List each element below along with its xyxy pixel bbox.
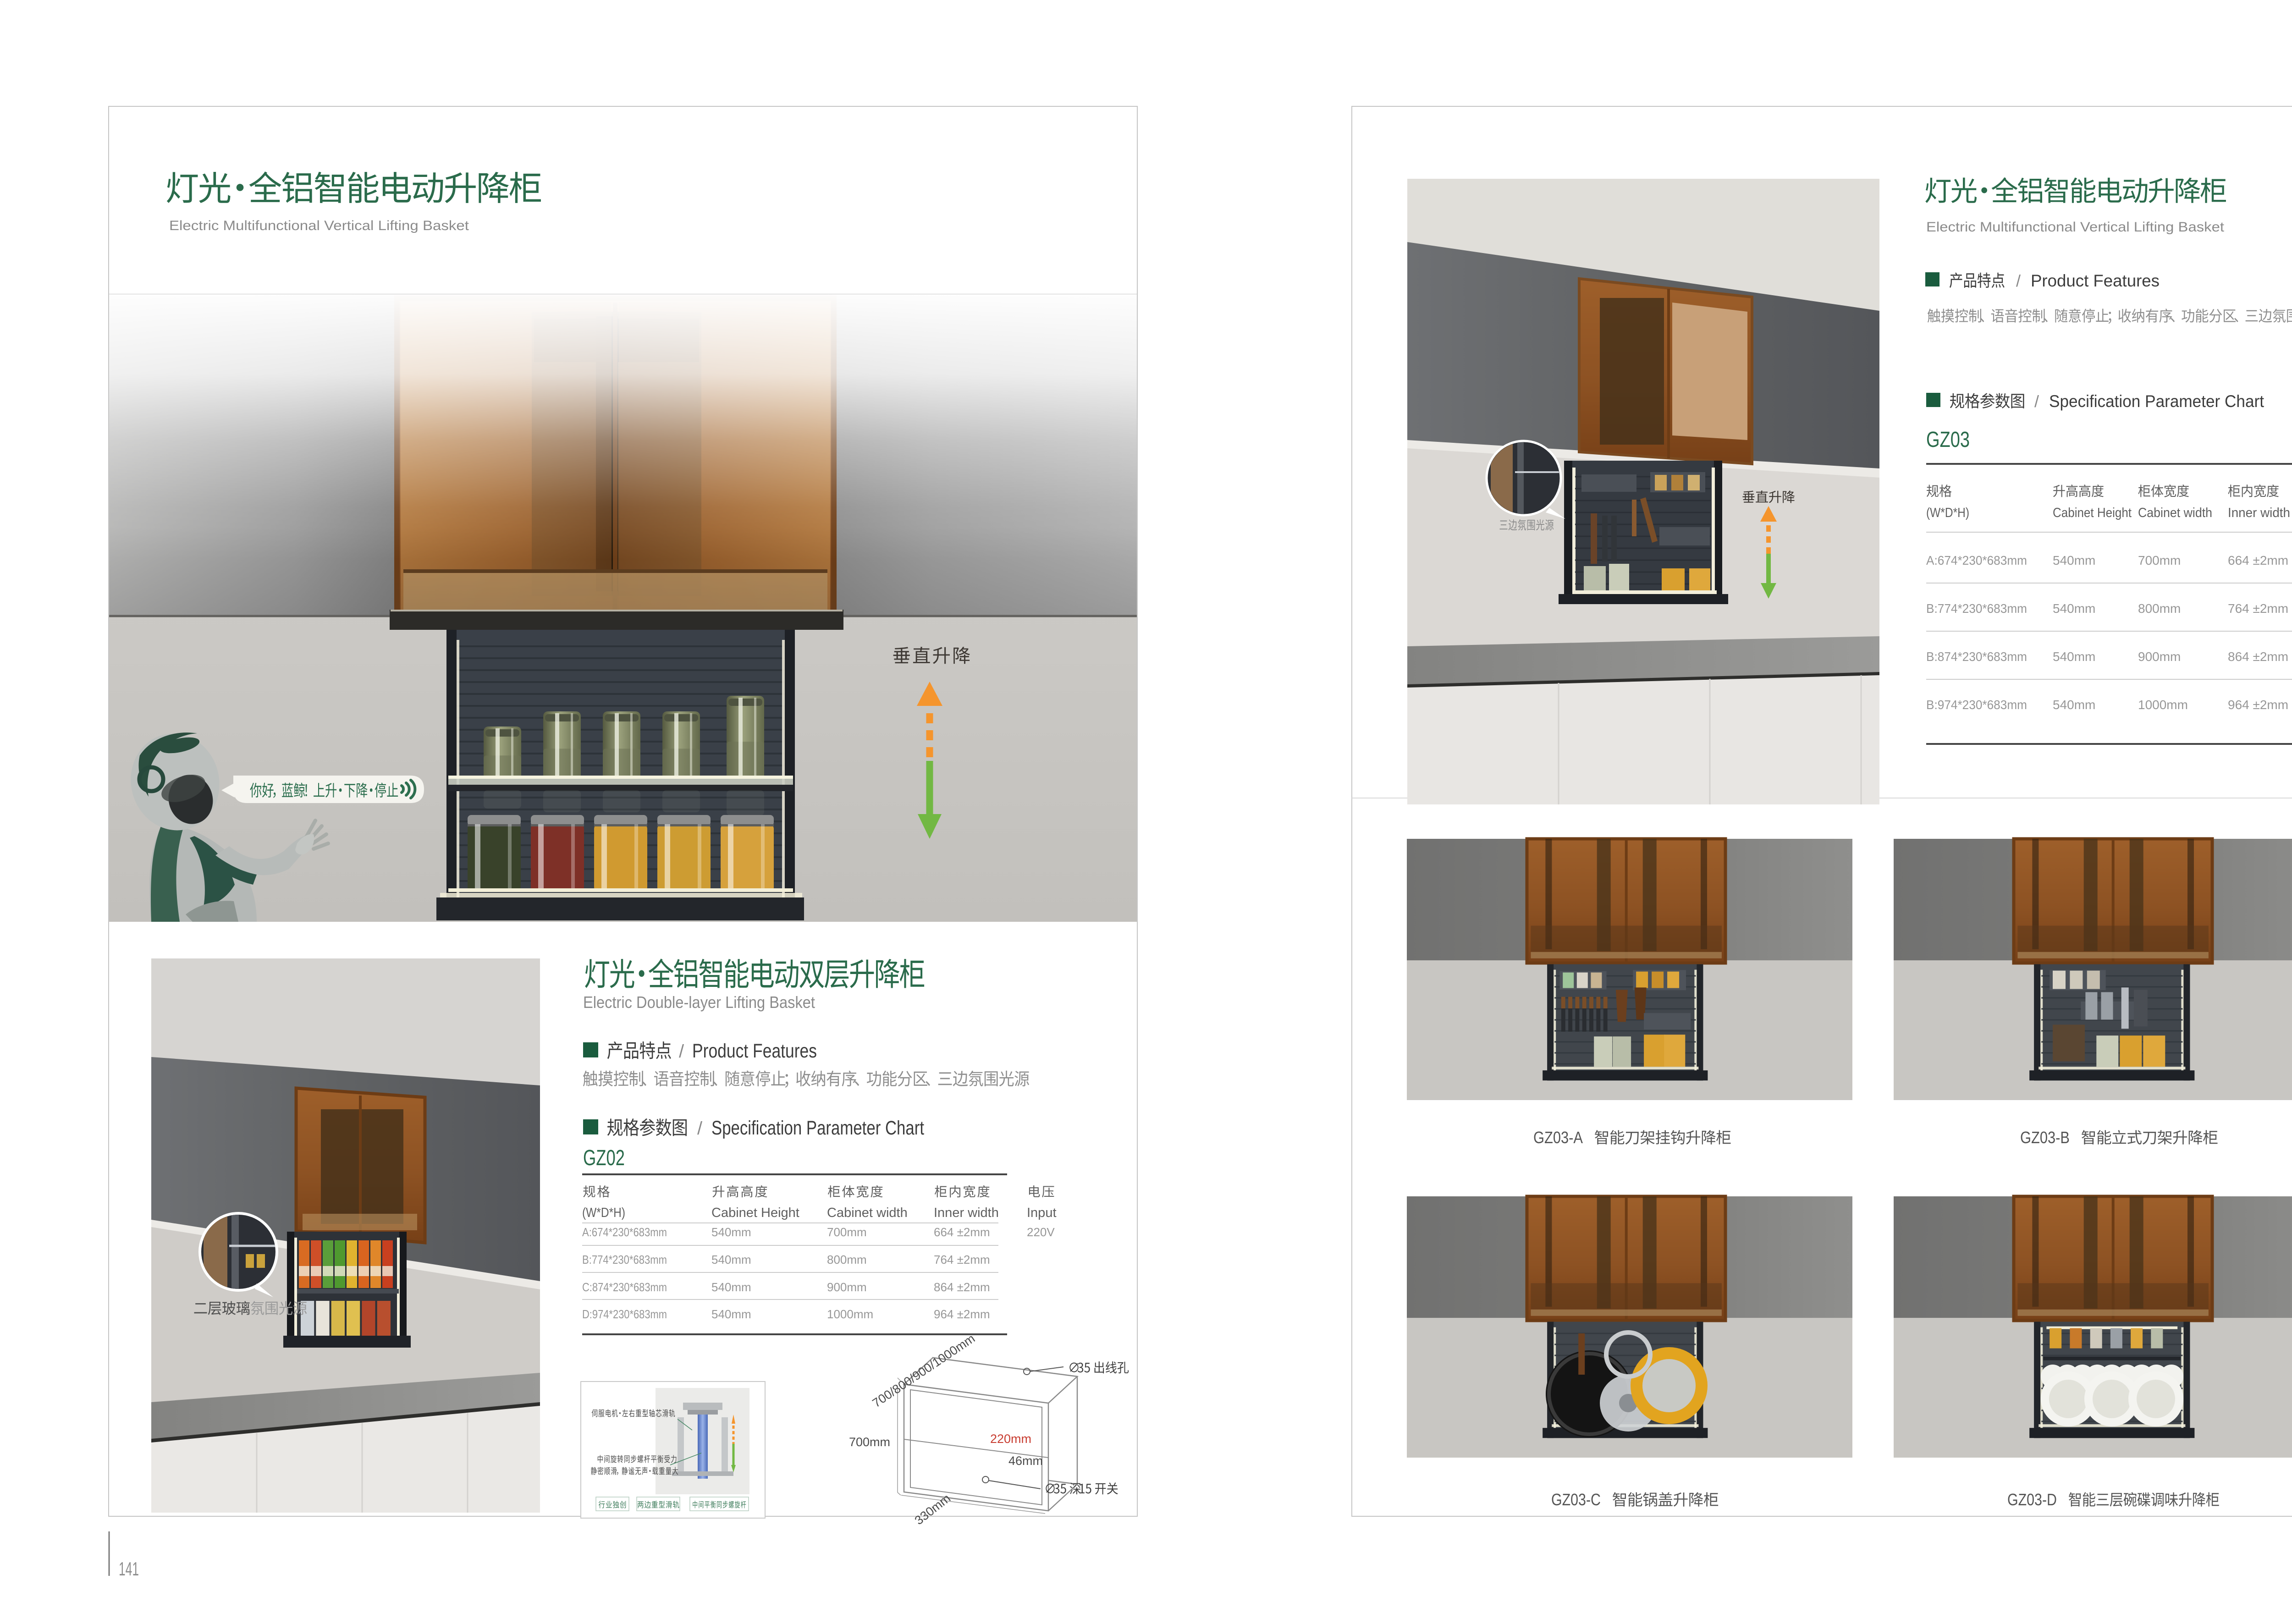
svg-text:540mm: 540mm — [2053, 553, 2095, 567]
svg-text:/: / — [697, 1118, 703, 1139]
svg-text:540mm: 540mm — [711, 1280, 751, 1294]
svg-text:Electric Multifunctional Verti: Electric Multifunctional Vertical Liftin… — [1926, 220, 2225, 235]
svg-text:GZ03-C: GZ03-C — [1551, 1490, 1601, 1509]
svg-text:Input: Input — [1027, 1206, 1057, 1220]
svg-text:B:774*230*683mm: B:774*230*683mm — [1926, 601, 2027, 616]
svg-text:/: / — [679, 1041, 684, 1062]
svg-text:B:874*230*683mm: B:874*230*683mm — [1926, 650, 2027, 664]
svg-text:540mm: 540mm — [2053, 601, 2095, 616]
svg-text:GZ03-D: GZ03-D — [2007, 1490, 2057, 1509]
svg-text:220mm: 220mm — [990, 1432, 1031, 1446]
svg-text:764 ±2mm: 764 ±2mm — [934, 1253, 990, 1266]
svg-text:/: / — [2034, 392, 2039, 411]
svg-text:Inner width: Inner width — [934, 1206, 999, 1220]
svg-text:864 ±2mm: 864 ±2mm — [2228, 650, 2288, 664]
svg-text:B:774*230*683mm: B:774*230*683mm — [582, 1253, 667, 1266]
svg-text:46mm: 46mm — [1008, 1454, 1043, 1468]
svg-text:700mm: 700mm — [849, 1435, 890, 1449]
svg-text:540mm: 540mm — [711, 1307, 751, 1321]
svg-text:/: / — [2016, 271, 2021, 290]
svg-text:Specification Parameter Chart: Specification Parameter Chart — [711, 1117, 924, 1139]
svg-text:Product Features: Product Features — [2031, 271, 2160, 290]
svg-text:540mm: 540mm — [711, 1253, 751, 1266]
svg-text:GZ03-B: GZ03-B — [2020, 1128, 2070, 1147]
svg-text:1000mm: 1000mm — [827, 1307, 873, 1321]
svg-text:A:674*230*683mm: A:674*230*683mm — [1926, 553, 2027, 567]
svg-text:Inner width: Inner width — [2228, 506, 2290, 520]
svg-text:664 ±2mm: 664 ±2mm — [934, 1225, 990, 1239]
svg-text:Specification Parameter Chart: Specification Parameter Chart — [2049, 392, 2264, 411]
svg-text:Electric Double-layer Lifting: Electric Double-layer Lifting Basket — [583, 993, 815, 1012]
svg-text:141: 141 — [119, 1558, 139, 1580]
svg-text:GZ03: GZ03 — [1926, 428, 1970, 452]
svg-text:Cabinet width: Cabinet width — [827, 1206, 908, 1220]
svg-text:Cabinet Height: Cabinet Height — [711, 1206, 799, 1220]
svg-text:(W*D*H): (W*D*H) — [582, 1206, 625, 1220]
svg-text:C:874*230*683mm: C:874*230*683mm — [582, 1280, 667, 1294]
svg-text:540mm: 540mm — [2053, 698, 2095, 712]
svg-text:GZ02: GZ02 — [583, 1146, 625, 1170]
svg-text:A:674*230*683mm: A:674*230*683mm — [582, 1225, 667, 1239]
svg-text:B:974*230*683mm: B:974*230*683mm — [1926, 698, 2027, 712]
svg-text:900mm: 900mm — [827, 1280, 867, 1294]
svg-text:Cabinet width: Cabinet width — [2138, 506, 2212, 520]
svg-text:(W*D*H): (W*D*H) — [1926, 506, 1969, 520]
svg-text:800mm: 800mm — [827, 1253, 867, 1266]
svg-text:GZ03-A: GZ03-A — [1533, 1128, 1583, 1147]
svg-text:900mm: 900mm — [2138, 650, 2181, 664]
svg-text:864 ±2mm: 864 ±2mm — [934, 1280, 990, 1294]
svg-text:540mm: 540mm — [2053, 650, 2095, 664]
svg-text:D:974*230*683mm: D:974*230*683mm — [582, 1307, 667, 1321]
svg-text:764 ±2mm: 764 ±2mm — [2228, 601, 2288, 616]
svg-text:Product Features: Product Features — [692, 1040, 817, 1062]
svg-text:1000mm: 1000mm — [2138, 698, 2188, 712]
svg-text:800mm: 800mm — [2138, 601, 2181, 616]
svg-text:964 ±2mm: 964 ±2mm — [934, 1307, 990, 1321]
svg-text:Electric Multifunctional Verti: Electric Multifunctional Vertical Liftin… — [169, 218, 469, 233]
svg-text:220V: 220V — [1027, 1225, 1055, 1239]
svg-text:964 ±2mm: 964 ±2mm — [2228, 698, 2288, 712]
svg-text:Cabinet Height: Cabinet Height — [2053, 506, 2132, 520]
svg-text:540mm: 540mm — [711, 1225, 751, 1239]
svg-text:700mm: 700mm — [827, 1225, 867, 1239]
svg-text:700mm: 700mm — [2138, 553, 2181, 567]
svg-text:664 ±2mm: 664 ±2mm — [2228, 553, 2288, 567]
